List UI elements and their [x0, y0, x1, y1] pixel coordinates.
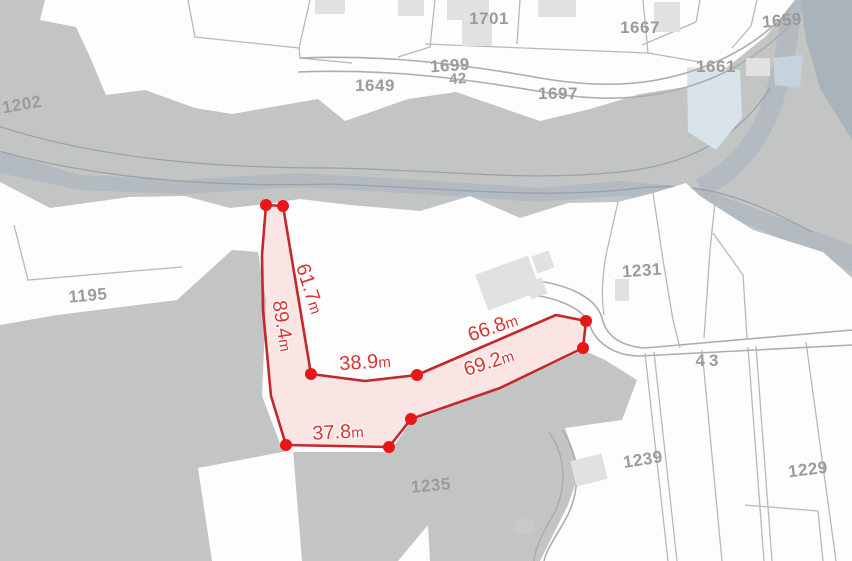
track-gap-white: [198, 450, 302, 561]
vertex-dot[interactable]: [405, 413, 417, 425]
building: [447, 0, 489, 20]
building: [531, 250, 554, 273]
building: [398, 0, 424, 16]
vertex-dot[interactable]: [577, 342, 589, 354]
map-canvas[interactable]: [0, 0, 852, 561]
map-viewport[interactable]: 1701166716591649169942169716611202119512…: [0, 0, 852, 561]
building: [462, 20, 492, 46]
vertex-dot[interactable]: [280, 439, 292, 451]
building: [516, 519, 534, 534]
building: [570, 454, 607, 487]
water-patch: [773, 55, 803, 88]
vertex-dot[interactable]: [277, 200, 289, 212]
building: [654, 2, 680, 32]
base-parcels: [0, 0, 852, 561]
building: [746, 58, 770, 76]
road-43: [640, 345, 852, 356]
vertex-dot[interactable]: [305, 368, 317, 380]
building: [538, 0, 576, 17]
building: [615, 279, 629, 301]
vertex-dot[interactable]: [260, 199, 272, 211]
vertex-dot[interactable]: [411, 369, 423, 381]
vertex-dot[interactable]: [580, 315, 592, 327]
vertex-dot[interactable]: [383, 441, 395, 453]
building: [315, 0, 345, 14]
